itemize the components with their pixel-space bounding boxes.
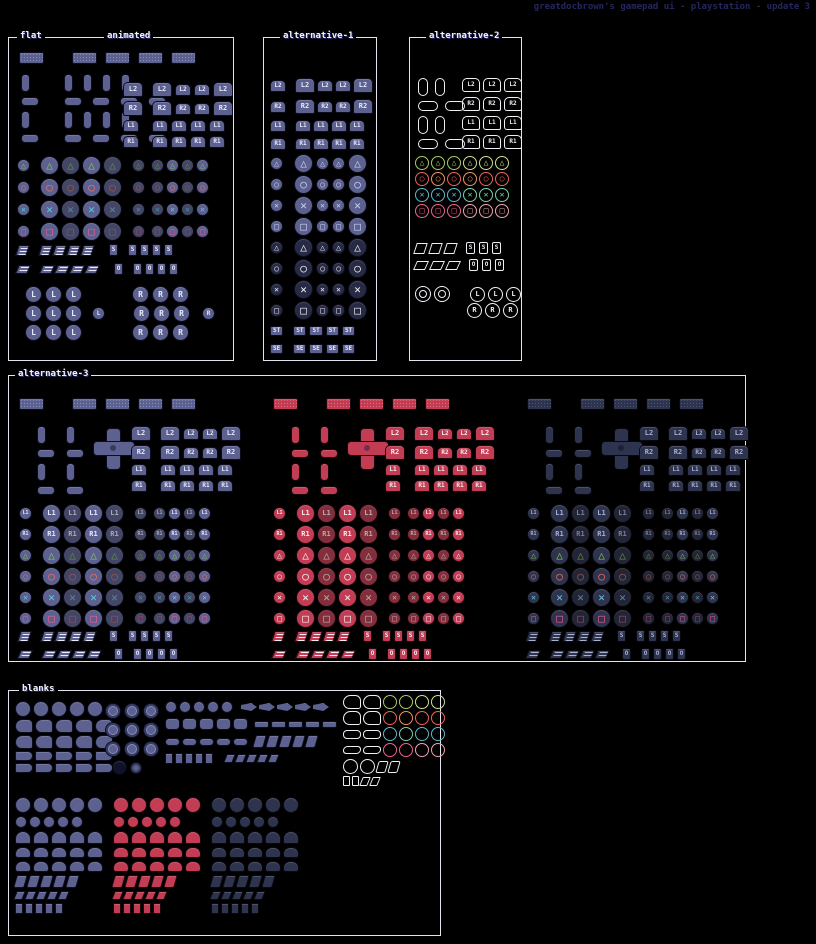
tri-glyph: △: [88, 160, 95, 171]
face-button-cir: ○: [42, 567, 61, 586]
outline-circle: [383, 743, 397, 757]
squ-glyph: □: [320, 223, 325, 231]
blank-circsm: [179, 701, 191, 713]
blank-half: [265, 847, 281, 858]
sprite-row: LLLLRRRR: [25, 305, 215, 322]
outline-ring: [434, 286, 450, 302]
round-button-r1: R1: [317, 525, 336, 544]
spacer: [40, 83, 54, 84]
tri-glyph: △: [354, 158, 361, 169]
spacer: [657, 513, 659, 514]
outline-face-squ: □: [431, 204, 445, 218]
face-button-squ: □: [407, 612, 420, 625]
face-button-tri: △: [332, 241, 345, 254]
outline-stick-l: L: [506, 287, 521, 302]
shoulder-button-r1: R1: [687, 480, 703, 492]
outline-face-squ: □: [479, 204, 493, 218]
shoulder-button-r2: R2: [456, 447, 472, 459]
section-label-flat: flat: [17, 31, 45, 41]
outline-face-cro: ✕: [495, 188, 509, 202]
touchpad-sprite: [613, 398, 638, 410]
face-button-cro: ✕: [452, 591, 465, 604]
face-button-squ: □: [294, 301, 313, 320]
touchpad-row: [527, 398, 704, 410]
spacer: [126, 654, 130, 655]
blank-circsm: [169, 816, 181, 828]
start-icon: [82, 631, 97, 642]
start-key: S: [152, 630, 161, 642]
spacer: [634, 618, 640, 619]
face-button-tri: △: [294, 154, 313, 173]
sprite-row: SSSSS: [19, 630, 178, 642]
face-button-squ: □: [527, 612, 540, 625]
select-icon: [84, 265, 100, 274]
face-button-cir: ○: [132, 181, 145, 194]
select-key: O: [114, 648, 123, 660]
shoulder-button-l2: L2: [270, 80, 286, 92]
spacer: [567, 453, 570, 454]
start-icon: [15, 245, 30, 256]
spacer: [313, 453, 316, 454]
round-button-l1: L1: [437, 507, 450, 520]
stick-press-grids: LLLRRRLLLLRRRRLLLRRR: [25, 286, 215, 341]
shoulder-button-l2: L2: [202, 428, 218, 440]
face-button-squ: □: [19, 612, 32, 625]
outline-face-cro: ✕: [463, 188, 477, 202]
round-button-l1: L1: [273, 507, 286, 520]
shoulder-button-l2: L2: [295, 78, 315, 93]
spacer: [286, 349, 290, 350]
tri-glyph: △: [320, 160, 325, 168]
face-button-squ: □: [134, 612, 147, 625]
dpad-piece: [83, 111, 92, 129]
spacer: [126, 534, 132, 535]
outline-face-tri: △: [431, 156, 445, 170]
sprite-row: R2R2R2: [462, 97, 522, 111]
spacer: [85, 313, 89, 314]
shoulder-button-r1: R1: [190, 136, 206, 148]
face-button-cir: ○: [84, 567, 103, 586]
outline-start-key: S: [492, 242, 501, 254]
face-buttons: L1L1L1L1L1L1L1L1L1L1R1R1R1R1R1R1R1R1R1R1…: [19, 504, 211, 628]
blank-rectsm: [113, 903, 121, 914]
round-button-l1: L1: [19, 507, 32, 520]
dpad-piece: [320, 486, 338, 495]
spacer: [52, 58, 64, 59]
blank-rectsm: [195, 753, 203, 764]
cro-glyph: ✕: [320, 202, 325, 210]
blank-circle: [113, 797, 129, 813]
dpad-piece: [37, 463, 46, 481]
round-button-r1: R1: [613, 525, 632, 544]
spacer: [380, 513, 386, 514]
blank-caps: [182, 738, 197, 746]
select-key: O: [641, 648, 650, 660]
face-button-cir: ○: [407, 570, 420, 583]
sprite-row: [113, 797, 201, 813]
cir-glyph: ○: [170, 184, 175, 192]
cir-glyph: ○: [336, 265, 341, 273]
face-button-tri: △: [359, 546, 378, 565]
shoulder-button-l2: L2: [335, 80, 351, 92]
blank-wedge: [55, 735, 73, 749]
squ-glyph: □: [200, 228, 205, 236]
cro-glyph: ✕: [680, 594, 685, 602]
sprite-row: LLLRRR: [25, 286, 215, 303]
face-button-cir: ○: [676, 570, 689, 583]
face-button-squ: □: [550, 609, 569, 628]
sprite-row: OOOOO: [273, 648, 432, 660]
outline-start-select: SSSOOO: [415, 242, 504, 271]
blank-bar: [322, 721, 337, 728]
outline-shoulder-r2: R2: [483, 97, 501, 111]
sprite-row: [211, 831, 299, 844]
spacer: [126, 576, 132, 577]
select-key: O: [114, 263, 123, 275]
spacer: [124, 187, 130, 188]
outline-face-tri: △: [479, 156, 493, 170]
outline-circle: [383, 727, 397, 741]
face-button-cro: ✕: [332, 283, 345, 296]
dpad-piece: [320, 463, 329, 481]
blank-half: [265, 861, 281, 872]
blank-half: [69, 847, 85, 858]
blank-half: [167, 861, 183, 872]
cir-glyph: ○: [157, 573, 162, 581]
sprite-row: □□□□□□: [415, 204, 509, 218]
select-key: O: [169, 263, 178, 275]
outline-start-key: S: [479, 242, 488, 254]
cir-glyph: ○: [456, 573, 461, 581]
squ-glyph: □: [300, 221, 307, 232]
blank-wedgef: [55, 751, 73, 761]
cro-glyph: ✕: [187, 594, 192, 602]
select-button: SE: [326, 344, 339, 354]
blank-wedge: [75, 719, 93, 733]
blank-caps: [233, 738, 248, 746]
sprite-row: OOOOO: [19, 648, 178, 660]
outline-wedge: [363, 711, 381, 725]
spacer: [193, 313, 199, 314]
squ-glyph: □: [302, 613, 309, 624]
sprite-row: [165, 753, 337, 764]
cir-glyph: ○: [109, 182, 116, 193]
shoulder-button-r1: R1: [433, 480, 449, 492]
sprite-row: [15, 735, 113, 749]
shoulder-button-r2: R2: [152, 101, 172, 116]
round-button-l1: L1: [359, 504, 378, 523]
face-button-tri: △: [388, 549, 401, 562]
select-icon: [310, 650, 326, 659]
shoulder-button-l1: L1: [385, 464, 401, 476]
spacer: [403, 534, 405, 535]
cir-glyph: ○: [323, 571, 330, 582]
sprite-row: [545, 463, 592, 481]
blank-half: [15, 847, 31, 858]
squ-glyph: □: [187, 615, 192, 623]
shoulder-button-r2: R2: [385, 445, 405, 460]
sprite-row: ○○○○○○○○○○: [19, 567, 211, 586]
round-button-r1: R1: [407, 528, 420, 541]
touchpad-sprite: [105, 52, 130, 64]
spacer: [154, 433, 157, 434]
sprite-row: [15, 875, 103, 888]
face-button-tri: △: [166, 159, 179, 172]
dpad-piece: [21, 111, 30, 129]
spacer: [286, 310, 291, 311]
round-button-l1: L1: [571, 504, 590, 523]
blank-blob: [216, 718, 231, 730]
dpad-piece: [21, 74, 30, 92]
face-button-squ: □: [592, 609, 611, 628]
sprite-row: [37, 426, 84, 444]
face-button-squ: □: [437, 612, 450, 625]
section-alternative-1: alternative-1L2L2L2L2L2R2R2R2R2R2L1L1L1L…: [263, 37, 377, 361]
face-button-cro: ✕: [42, 588, 61, 607]
dpad-piece: [66, 426, 75, 444]
face-button-squ: □: [296, 609, 315, 628]
sprite-row: [343, 695, 445, 709]
shoulder-button-r1: R1: [668, 480, 684, 492]
blank-circsm: [165, 701, 177, 713]
shoulder-button-l2: L2: [221, 426, 241, 441]
outline-st: [443, 243, 458, 254]
start-button: ST: [326, 326, 339, 336]
blank-half: [229, 847, 245, 858]
face-button-cir: ○: [294, 175, 313, 194]
tri-glyph: △: [274, 244, 279, 252]
face-button-cro: ✕: [437, 591, 450, 604]
spacer: [150, 486, 157, 487]
sprite-row: △△△△△△: [415, 156, 509, 170]
spacer: [380, 576, 386, 577]
spacer: [34, 576, 40, 577]
face-button-cro: ✕: [19, 591, 32, 604]
face-button-cir: ○: [198, 570, 211, 583]
sprite-row: L1L1L1L1L1: [123, 120, 233, 132]
start-icon: [271, 631, 286, 642]
start-icon: [336, 631, 351, 642]
sprite-row: [37, 463, 84, 481]
tri-glyph: △: [109, 160, 116, 171]
tri-glyph: △: [441, 552, 446, 560]
outline-face-squ: □: [463, 204, 477, 218]
blank-circsm: [113, 816, 125, 828]
cro-glyph: ✕: [274, 202, 279, 210]
face-button-squ: □: [198, 612, 211, 625]
tri-glyph: △: [23, 552, 28, 560]
spacer: [288, 534, 294, 535]
spacer: [542, 513, 548, 514]
shoulder-button-l2: L2: [668, 426, 688, 441]
sprite-row: [15, 701, 113, 717]
outline-sel: [413, 261, 429, 270]
face-button-tri: △: [273, 549, 286, 562]
outline-padv: [418, 116, 428, 134]
select-icon: [71, 650, 87, 659]
outline-shoulder-r2: R2: [504, 97, 522, 111]
round-button-r1: R1: [676, 528, 689, 541]
select-icon: [41, 650, 57, 659]
shoulder-button-r2: R2: [317, 101, 333, 113]
stick-button-l: L: [45, 305, 62, 322]
sprite-row: [93, 428, 133, 468]
shoulder-button-l1: L1: [123, 120, 139, 132]
shoulder-button-r1: R1: [313, 138, 329, 150]
sprite-row: L2L2L2L2L2: [131, 426, 241, 441]
sprite-row: [418, 101, 465, 111]
cro-glyph: ✕: [172, 594, 177, 602]
squ-glyph: □: [411, 615, 416, 623]
shoulder-buttons: L2L2L2L2L2R2R2R2R2R2L1L1L1L1L1R1R1R1R1R1: [270, 78, 373, 150]
outline-face-cro: ✕: [415, 188, 429, 202]
blank-ring: [124, 703, 140, 719]
start-icon: [322, 631, 337, 642]
stick-button-r: R: [172, 324, 189, 341]
blank-circle: [33, 797, 49, 813]
stick-button-r: R: [202, 307, 215, 320]
shoulder-button-l1: L1: [725, 464, 741, 476]
face-button-squ: □: [317, 609, 336, 628]
select-icon: [594, 650, 610, 659]
shoulder-button-l2: L2: [213, 82, 233, 97]
squ-glyph: □: [344, 613, 351, 624]
round-button-r1: R1: [183, 528, 196, 541]
sprite-row: [105, 722, 159, 738]
spacer: [126, 513, 132, 514]
blank-arrow: [295, 703, 311, 711]
stick-button-r: R: [152, 324, 169, 341]
spacer: [288, 555, 294, 556]
outline-caps2: [362, 746, 381, 754]
sprite-row: [291, 486, 338, 495]
sprite-row: L1L1L1L1L1: [639, 464, 749, 476]
outline-circle: [431, 743, 445, 757]
squ-glyph: □: [710, 615, 715, 623]
blank-grid-blue: [15, 797, 103, 914]
spacer: [49, 101, 54, 102]
face-button-squ: □: [332, 304, 345, 317]
touchpad-sprite: [646, 398, 671, 410]
spacer: [34, 618, 40, 619]
blank-slant: [304, 735, 319, 748]
round-button-l1: L1: [63, 504, 82, 523]
tri-glyph: △: [185, 162, 190, 170]
shoulder-button-r1: R1: [131, 480, 147, 492]
face-button-cir: ○: [19, 570, 32, 583]
tri-glyph: △: [646, 552, 651, 560]
shoulder-button-l2: L2: [710, 428, 726, 440]
tri-glyph: △: [274, 160, 279, 168]
round-button-l1: L1: [134, 507, 147, 520]
shoulder-button-r1: R1: [198, 480, 214, 492]
section-label-blanks: blanks: [19, 684, 58, 694]
blank-slantsm: [155, 891, 168, 900]
face-button-cro: ✕: [294, 280, 313, 299]
cir-glyph: ○: [619, 571, 626, 582]
face-buttons: L1L1L1L1L1L1L1L1L1L1R1R1R1R1R1R1R1R1R1R1…: [527, 504, 719, 628]
dpad-piece: [574, 463, 583, 481]
face-button-squ: □: [196, 225, 209, 238]
sprite-row: R1R1R1R1R1: [270, 138, 373, 150]
spacer: [149, 576, 151, 577]
spacer: [657, 555, 659, 556]
tri-glyph: △: [710, 552, 715, 560]
sprite-row: ✕✕✕✕✕: [270, 196, 367, 215]
blank-half: [33, 847, 49, 858]
blank-slant: [163, 875, 178, 888]
round-button-r1: R1: [42, 525, 61, 544]
sprite-row: [113, 847, 201, 858]
outline-circle: [343, 759, 358, 774]
stick-button-l: L: [92, 307, 105, 320]
round-button-r1: R1: [527, 528, 540, 541]
spacer: [288, 576, 294, 577]
sprite-row: ○○○○○○○○○○: [17, 178, 209, 197]
touchpad-sprite: [19, 52, 44, 64]
blank-circsm: [211, 816, 223, 828]
blank-circle: [247, 797, 263, 813]
outline-stick-l: L: [488, 287, 503, 302]
face-button-squ: □: [571, 609, 590, 628]
face-button-cro: ✕: [103, 200, 122, 219]
face-button-squ: □: [332, 220, 345, 233]
outline-circle: [415, 727, 429, 741]
squ-glyph: □: [170, 228, 175, 236]
round-button-l1: L1: [613, 504, 632, 523]
spacer: [32, 231, 38, 232]
blank-arch: [87, 831, 103, 844]
face-button-squ: □: [63, 609, 82, 628]
face-button-cir: ○: [613, 567, 632, 586]
face-button-cro: ✕: [613, 588, 632, 607]
round-button-l1: L1: [407, 507, 420, 520]
spacer: [34, 654, 40, 655]
cro-glyph: ✕: [556, 592, 563, 603]
shoulder-button-l2: L2: [152, 82, 172, 97]
cro-glyph: ✕: [411, 594, 416, 602]
face-button-cro: ✕: [105, 588, 124, 607]
face-button-cir: ○: [571, 567, 590, 586]
cro-glyph: ✕: [392, 594, 397, 602]
squ-glyph: □: [619, 613, 626, 624]
face-button-tri: △: [348, 154, 367, 173]
start-key: S: [406, 630, 415, 642]
start-icon: [590, 631, 605, 642]
spacer: [235, 707, 239, 708]
spacer: [150, 470, 157, 471]
blank-circle: [185, 797, 201, 813]
face-button-tri: △: [103, 156, 122, 175]
squ-glyph: □: [109, 226, 116, 237]
round-button-r1: R1: [661, 528, 674, 541]
sprite-row: R2R2R2R2R2: [270, 99, 373, 114]
start-select: SSSSSOOOOO: [19, 630, 178, 660]
shoulder-button-r1: R1: [639, 480, 655, 492]
cro-glyph: ✕: [302, 592, 309, 603]
spacer: [634, 597, 640, 598]
sprite-row: ○○○○○○: [415, 172, 509, 186]
outline-circle: [399, 695, 413, 709]
tri-glyph: △: [21, 162, 26, 170]
blank-circsm: [57, 816, 69, 828]
start-icon: [38, 245, 53, 256]
stick-button-r: R: [132, 324, 149, 341]
spacer: [357, 654, 365, 655]
outline-circle: [360, 759, 375, 774]
spacer: [105, 767, 109, 768]
blank-wedge: [35, 719, 53, 733]
